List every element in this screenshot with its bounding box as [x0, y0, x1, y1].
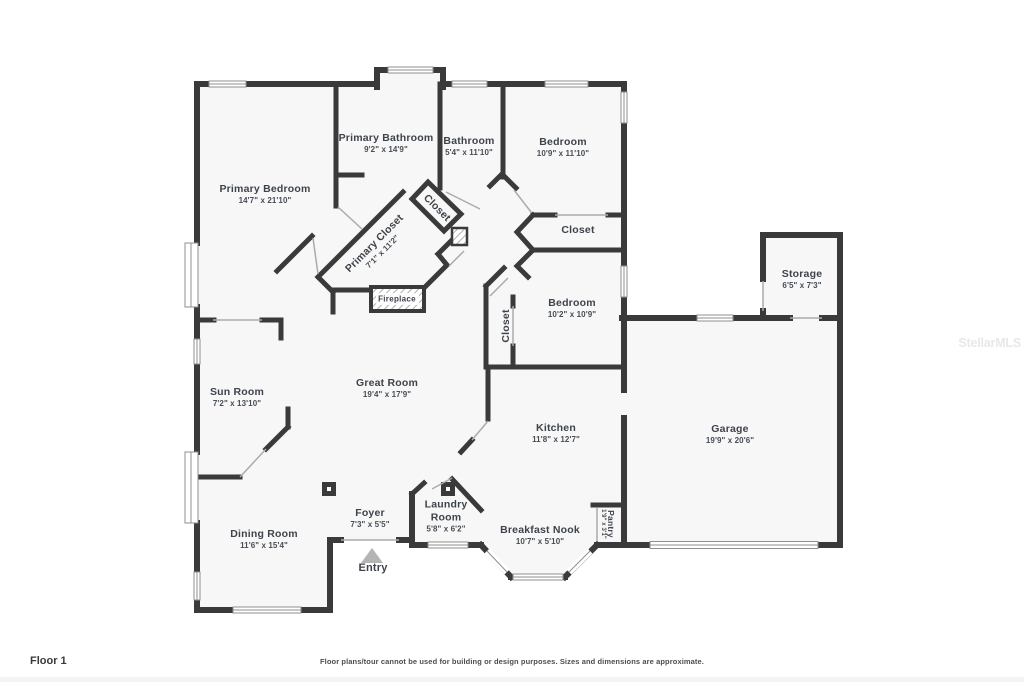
bottom-band — [0, 677, 1024, 682]
closet-shelf — [452, 228, 467, 245]
entry-arrow-icon — [361, 548, 383, 563]
watermark: StellarMLS — [955, 336, 1021, 350]
floor-areas — [197, 70, 840, 610]
disclaimer-text: Floor plans/tour cannot be used for buil… — [0, 657, 1024, 666]
fireplace — [371, 287, 424, 311]
floorplan-drawing — [0, 0, 1024, 682]
floorplan-stage: Primary Bathroom 9'2" x 14'9" Bathroom 5… — [0, 0, 1024, 682]
